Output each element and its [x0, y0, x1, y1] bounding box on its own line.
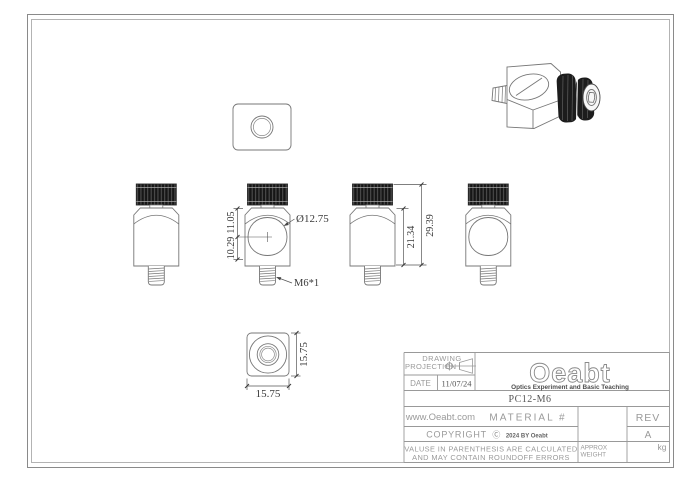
part-number: PC12-M6 [509, 394, 552, 405]
projection-label: PROJECTION [405, 362, 456, 371]
drawing-sheet: 11.05 10.29 Ø12.75 M6*1 21.34 29.39 [0, 0, 700, 478]
date-label: DATE [410, 379, 431, 388]
dimension-base-depth: 15.75 [291, 331, 310, 378]
iso-knurled-knob [557, 74, 600, 123]
dimension-heights: 21.34 29.39 [394, 183, 437, 268]
view-side-right [466, 184, 511, 285]
dim-base-width: 15.75 [256, 388, 281, 400]
dim-body-height: 21.34 [406, 226, 417, 249]
dim-base-depth: 15.75 [298, 342, 310, 367]
rev-label: REV [636, 412, 661, 424]
iso-threaded-stud [492, 86, 507, 104]
dimension-center-heights: 11.05 10.29 [226, 207, 243, 262]
view-back [350, 184, 395, 285]
view-top [233, 104, 291, 150]
copyright-suffix: 2024 BY Oeabt [506, 434, 548, 440]
dimension-base-width: 15.75 [245, 379, 291, 401]
dim-center-to-bottom: 10.29 [226, 237, 237, 260]
title-block: DRAWING PROJECTION DATE 11/07/24 Oeabt O… [404, 353, 670, 463]
iso-body-block [507, 64, 561, 129]
disclaimer-line2: AND MAY CONTAIN ROUNDOFF ERRORS [412, 453, 570, 462]
rev-value: A [645, 430, 652, 441]
view-bottom [247, 333, 289, 376]
date-value: 11/07/24 [442, 379, 473, 389]
approx-weight-line2: WEIGHT [581, 452, 607, 459]
engineering-drawing-canvas: 11.05 10.29 Ø12.75 M6*1 21.34 29.39 [0, 0, 700, 478]
website: www.Oeabt.com [405, 412, 475, 423]
copyright-icon: Ⓒ [492, 431, 500, 440]
dim-center-to-top: 11.05 [226, 211, 237, 233]
logo-tagline: Optics Experiment and Basic Teaching [511, 384, 629, 391]
dim-bore-diameter: Ø12.75 [296, 213, 329, 225]
copyright-label: COPYRIGHT [426, 430, 487, 440]
dim-overall-height: 29.39 [425, 214, 436, 237]
material-label: MATERIAL # [489, 413, 566, 424]
approx-weight-line1: APPROX [581, 445, 608, 452]
view-isometric [492, 64, 600, 129]
copyright-line: COPYRIGHT Ⓒ 2024 BY Oeabt [426, 425, 548, 442]
weight-unit: kg [658, 442, 667, 452]
view-side-left [134, 184, 179, 285]
dimension-thread-callout: M6*1 [276, 277, 319, 289]
dim-thread-spec: M6*1 [294, 278, 319, 289]
